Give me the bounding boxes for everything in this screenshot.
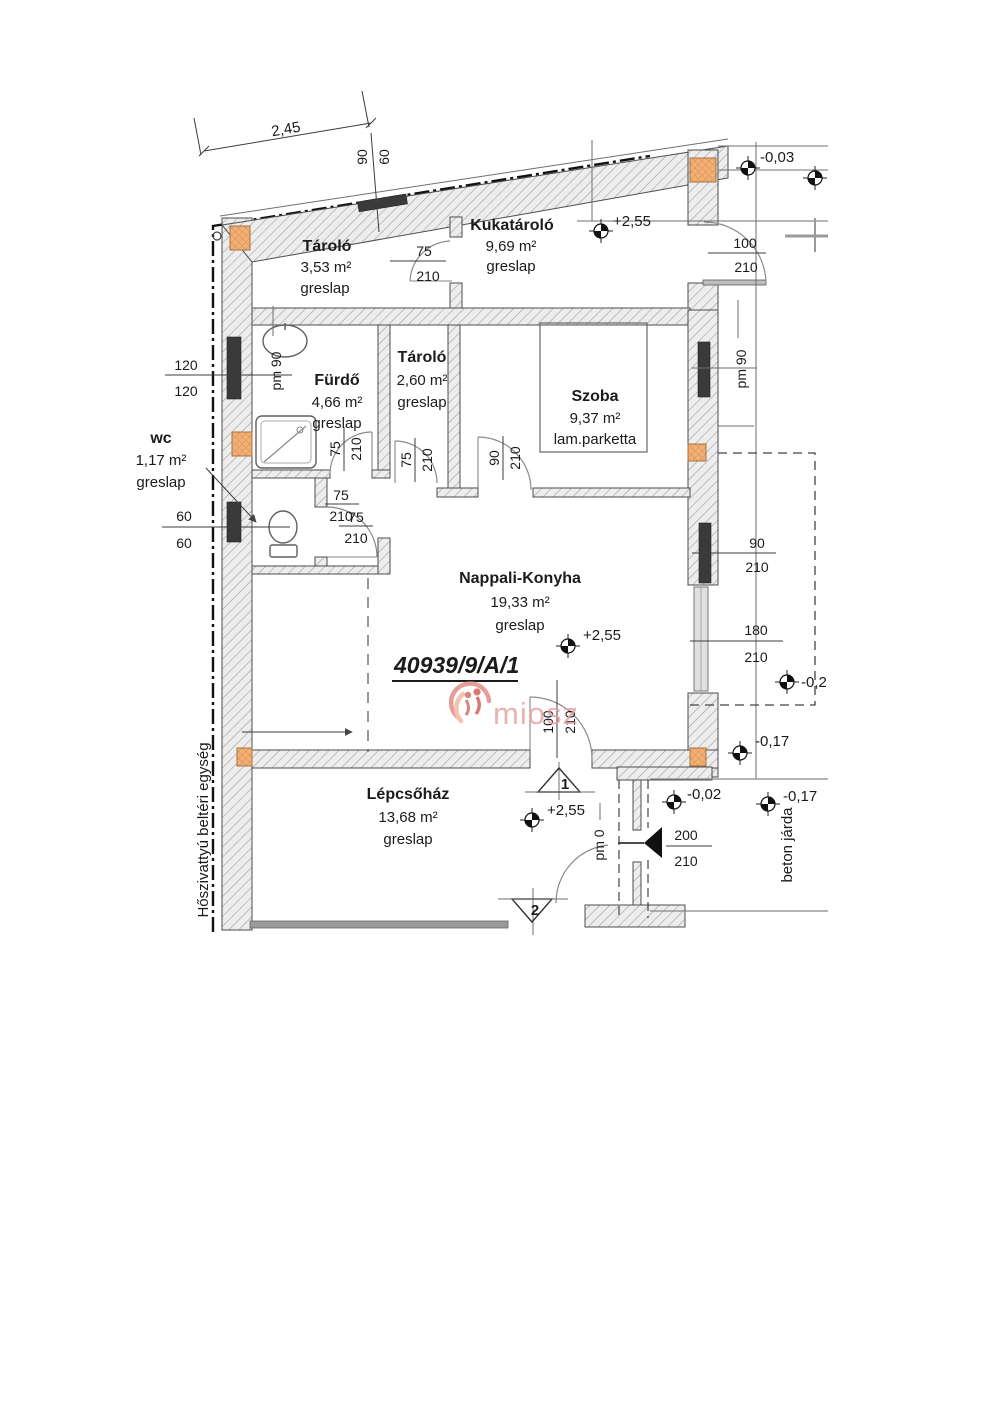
column [237,748,252,766]
room-area: 13,68 m² [378,809,437,826]
wall-segment [688,283,718,310]
elevation-label: +2,55 [547,802,585,819]
parapet-label: pm 90 [268,351,284,390]
wall-segment [585,905,685,927]
door-dim: 75 [398,452,414,468]
room-floor: greslap [312,415,361,432]
door-dim: 75 [327,441,343,457]
room-name: Tároló [398,349,447,366]
watermark-text: miosz [493,696,579,731]
column [690,158,716,182]
wall-segment [222,218,252,930]
benchmark-icon [728,741,752,765]
room-floor: greslap [397,394,446,411]
door-dim: 75 [333,487,349,503]
window-60 [227,502,241,542]
elevation-label: -0,17 [783,788,817,805]
wall-segment [252,566,390,574]
window-120 [227,337,241,399]
window-dim: 90 [749,535,765,551]
toilet-tank [270,545,297,557]
room-name: wc [149,430,171,447]
room-floor: greslap [300,280,349,297]
watermark: miosz [451,684,579,731]
top-window-dim: 90 [354,149,370,165]
section-markers: 1 2 [498,762,595,935]
wall-segment [437,488,478,497]
room-area: 4,66 m² [312,394,363,411]
elevation-label: +2,55 [613,213,651,230]
elevation-label: -0,17 [755,733,789,750]
door-dim: 210 [344,530,368,546]
room-area: 1,17 m² [136,452,187,469]
walkway-note: beton járda [779,807,796,883]
room-floor: greslap [486,258,535,275]
room-name: Szoba [571,388,618,405]
elevation-label: -0,02 [687,786,721,803]
column [690,748,706,766]
watermark-logo [456,694,463,721]
watermark-figure [473,688,480,695]
section-number: 1 [561,776,569,793]
parapet-label: pm 90 [733,349,749,388]
wall-segment [252,750,530,768]
wall-segment [448,325,460,488]
wall-segment [633,780,641,830]
wall-segment [315,478,327,507]
door-leaf [703,280,766,285]
door-dim: 100 [733,235,757,251]
benchmark-icon [662,790,686,814]
room-area: 9,37 m² [570,410,621,427]
door-dim: 180 [744,622,768,638]
extension-line [194,118,201,155]
door-dim: 90 [486,450,502,466]
parapet-label: pm 0 [591,829,607,860]
section-number: 2 [531,902,539,919]
room-name: Fürdő [314,372,360,389]
shower-icon [256,416,316,468]
room-area: 9,69 m² [486,238,537,255]
wall-segment [450,283,462,308]
overall-dim-label: 2,45 [270,119,302,141]
benchmark-icon [756,792,780,816]
door-dim: 210 [744,649,768,665]
door-dim: 210 [348,437,364,461]
wall-segment [372,470,390,478]
heat-pump-note: Hőszivattyú beltéri egység [195,742,212,917]
room-floor: greslap [383,831,432,848]
room-area: 19,33 m² [490,594,549,611]
door-dim: 210 [419,448,435,472]
door-dim: 210 [416,268,440,284]
room-name: Nappali-Konyha [459,570,581,587]
benchmark-icon [589,219,613,243]
room-floor: lam.parketta [554,431,637,448]
window-dim: 120 [174,383,198,399]
room-area: 2,60 m² [397,372,448,389]
door-dim: 210 [507,446,523,470]
annotations: Hőszivattyú beltéri egység beton járda 4… [195,652,796,918]
extension-line [362,91,369,127]
benchmark-icon [556,634,580,658]
wall-segment [617,767,712,780]
column [688,444,706,461]
window-90 [698,342,710,397]
wall-segment [378,538,390,574]
column [230,226,250,250]
top-window-dim: 60 [376,149,392,165]
wall-segment [633,862,641,905]
walls [222,146,728,930]
floor-plan-page: 2,45 90 60 75 210 100 210 120 120 60 60 … [0,0,1000,1415]
elevation-label: -0,2 [801,674,827,691]
wall-segment [450,217,462,237]
benchmark-icon [775,670,799,694]
elevation-label: -0,03 [760,149,794,166]
window-dim: 60 [176,508,192,524]
room-floor: greslap [495,617,544,634]
watermark-figure [476,697,479,714]
door-dim: 210 [674,853,698,869]
entrance-door-leaf [644,827,662,858]
benchmark-icon [520,808,544,832]
room-area: 3,53 m² [301,259,352,276]
door-dim: 210 [734,259,758,275]
room-name: Lépcsőház [367,786,450,803]
parcel-number: 40939/9/A/1 [393,652,519,678]
window-dim: 210 [745,559,769,575]
window-dim: 60 [176,535,192,551]
wall-segment [378,325,390,478]
door-dim: 75 [416,243,432,259]
room-floor: greslap [136,474,185,491]
floor-plan-drawing: 2,45 90 60 75 210 100 210 120 120 60 60 … [0,0,1000,960]
watermark-figure [466,700,469,715]
door-dim: 200 [674,827,698,843]
window-dim: 120 [174,357,198,373]
room-name: Tároló [303,238,352,255]
column [232,432,252,456]
stair-edge [250,921,508,928]
room-name: Kukatároló [470,217,554,234]
wall-segment [533,488,690,497]
door-dim: 75 [348,509,364,525]
elevation-label: +2,55 [583,627,621,644]
wall-segment [252,470,330,478]
watermark-figure [465,692,471,698]
